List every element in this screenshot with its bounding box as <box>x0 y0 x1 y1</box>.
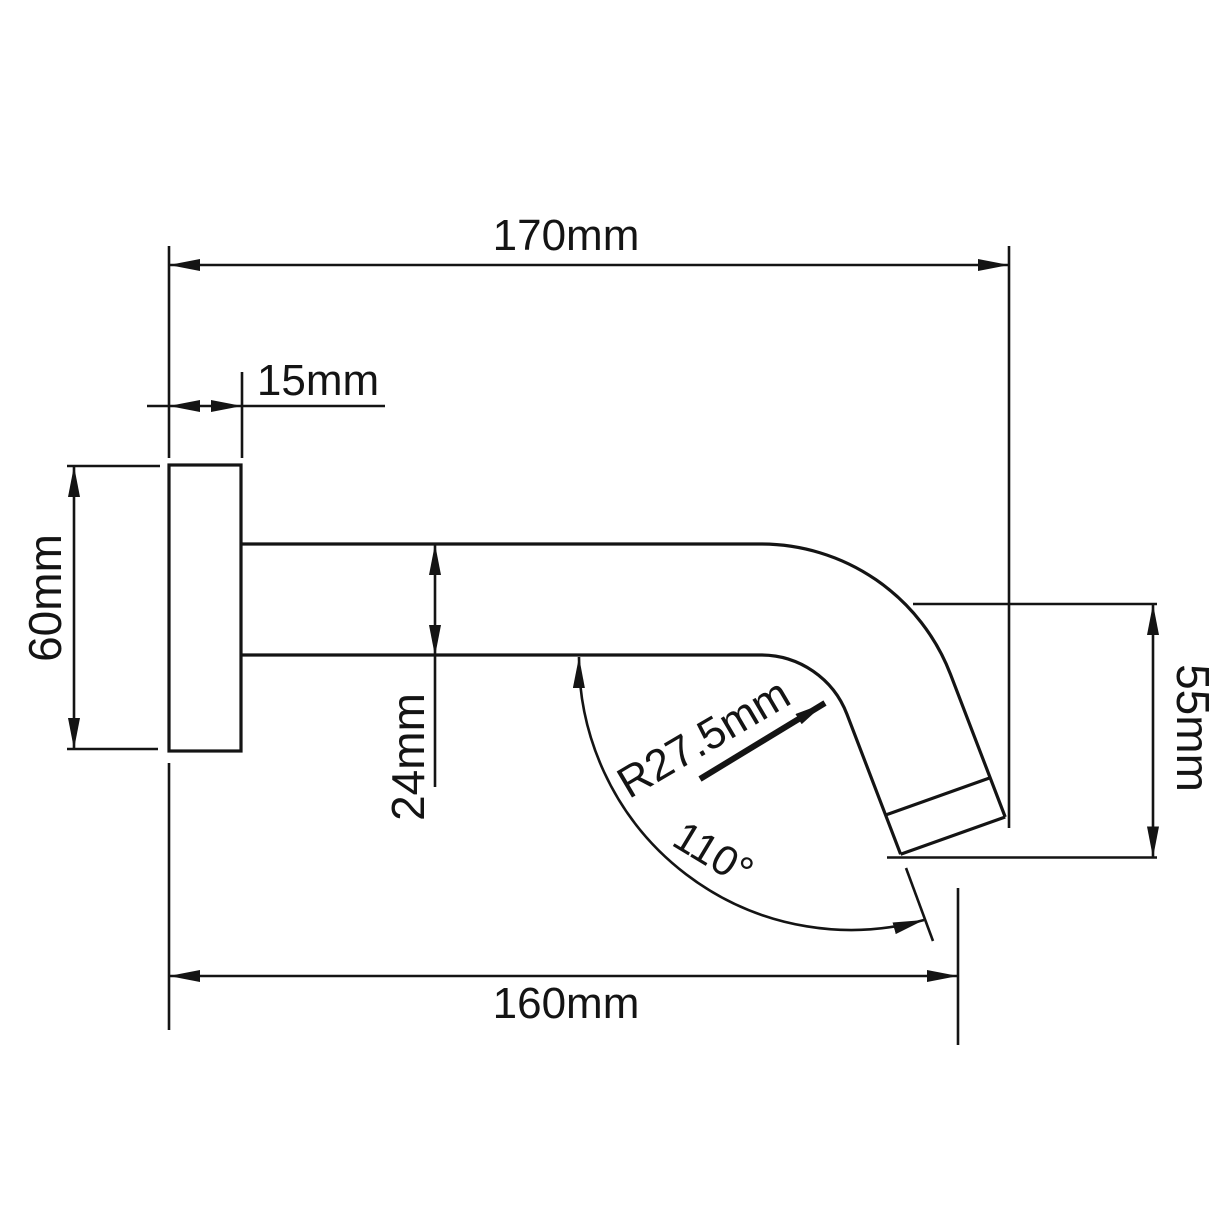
page: 170mm 15mm 60mm 24mm 55mm 160mm R27.5mm … <box>0 0 1214 1214</box>
dim-bend-radius: R27.5mm <box>609 669 825 808</box>
outlet-face-edge <box>901 817 1006 854</box>
dim-outlet-drop-label: 55mm <box>1167 664 1214 792</box>
ext-outlet-edge-angle <box>906 868 933 941</box>
dim-pipe-diameter-label: 24mm <box>382 693 434 821</box>
dim-flange-depth: 15mm <box>147 356 385 406</box>
dim-outlet-angle-label: 110° <box>665 812 761 895</box>
dim-bottom-reach: 160mm <box>169 976 958 1028</box>
dim-outlet-drop: 55mm <box>1153 604 1214 858</box>
dim-top-width-label: 170mm <box>493 211 640 260</box>
dim-flange-depth-label: 15mm <box>257 356 379 405</box>
dim-top-width: 170mm <box>169 211 1009 265</box>
spout-outline <box>169 465 1005 854</box>
aerator-seam <box>886 778 991 815</box>
dim-flange-diameter-label: 60mm <box>19 534 71 662</box>
dim-pipe-diameter: 24mm <box>382 544 435 821</box>
dim-flange-diameter: 60mm <box>19 466 74 749</box>
pipe-bottom-edge <box>241 655 901 854</box>
spout-technical-drawing: 170mm 15mm 60mm 24mm 55mm 160mm R27.5mm … <box>0 0 1214 1214</box>
extension-lines <box>67 246 1157 1045</box>
dim-bottom-reach-label: 160mm <box>493 979 640 1028</box>
wall-flange <box>169 465 241 751</box>
